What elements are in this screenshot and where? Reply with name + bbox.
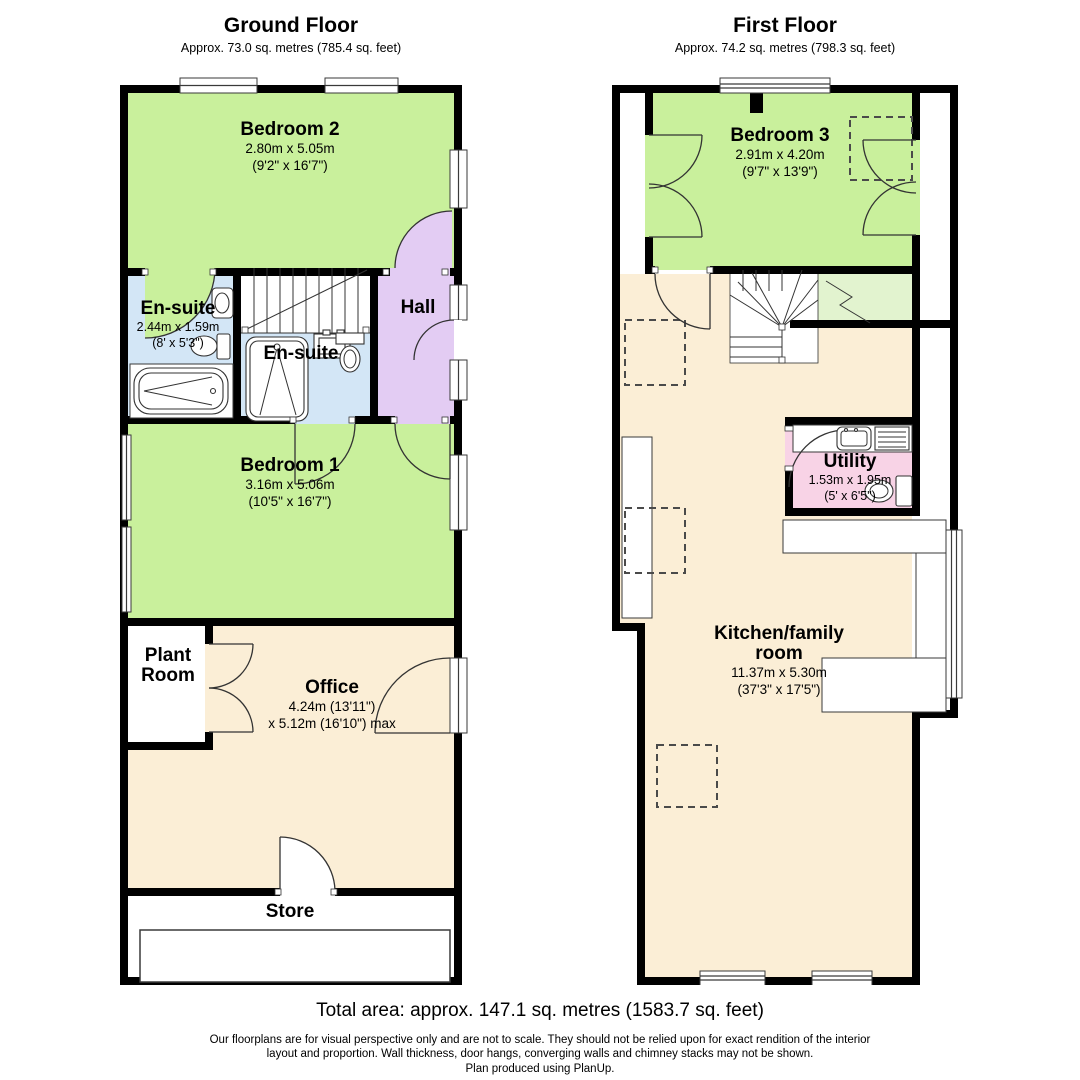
window [700, 971, 765, 985]
hall-label: Hall [378, 298, 458, 318]
total-area-text: Total area: approx. 147.1 sq. metres (15… [0, 1000, 1080, 1022]
ensuite2-label: En-suite [255, 344, 347, 364]
bedroom1-label: Bedroom 1 3.16m x 5.06m (10'5" x 16'7") [180, 456, 400, 510]
window-recess [622, 437, 652, 618]
window [946, 530, 962, 698]
ground-floor-title: Ground Floor [120, 14, 462, 38]
disclaimer-line: Plan produced using PlanUp. [0, 1062, 1080, 1076]
utility-sink [837, 427, 871, 450]
eaves-storage [620, 93, 645, 270]
eaves-storage [920, 93, 950, 530]
first-floor-subtitle: Approx. 74.2 sq. metres (798.3 sq. feet) [612, 41, 958, 55]
window [812, 971, 872, 985]
first-floor-plan [607, 75, 967, 985]
disclaimer-text: Our floorplans are for visual perspectiv… [0, 1033, 1080, 1076]
floorplan-page: Ground Floor Approx. 73.0 sq. metres (78… [0, 0, 1080, 1080]
ground-floor-header: Ground Floor Approx. 73.0 sq. metres (78… [120, 14, 462, 55]
disclaimer-line: layout and proportion. Wall thickness, d… [0, 1047, 1080, 1061]
ensuite1-label: En-suite 2.44m x 1.59m (8' x 5'3") [116, 299, 240, 351]
bedroom2-label: Bedroom 2 2.80m x 5.05m (9'2" x 16'7") [180, 120, 400, 174]
utility-label: Utility 1.53m x 1.95m (5' x 6'5") [793, 452, 907, 504]
ground-floor-subtitle: Approx. 73.0 sq. metres (785.4 sq. feet) [120, 41, 462, 55]
first-floor-title: First Floor [612, 14, 958, 38]
office-label: Office 4.24m (13'11") x 5.12m (16'10") m… [212, 678, 452, 732]
disclaimer-line: Our floorplans are for visual perspectiv… [0, 1033, 1080, 1047]
plant-room-label: Plant Room [126, 646, 210, 686]
kitchen-counter [783, 520, 946, 553]
store-front-window [140, 930, 450, 982]
first-floor-header: First Floor Approx. 74.2 sq. metres (798… [612, 14, 958, 55]
footer: Total area: approx. 147.1 sq. metres (15… [0, 1000, 1080, 1076]
toilet-cistern [336, 333, 364, 344]
store-label: Store [240, 902, 340, 922]
window [720, 78, 830, 93]
ground-floor-plan [115, 75, 475, 985]
kitchen-family-room-label: Kitchen/family room 11.37m x 5.30m (37'3… [704, 624, 854, 698]
front-door-opening [454, 320, 462, 360]
bedroom3-label: Bedroom 3 2.91m x 4.20m (9'7" x 13'9") [670, 126, 890, 180]
